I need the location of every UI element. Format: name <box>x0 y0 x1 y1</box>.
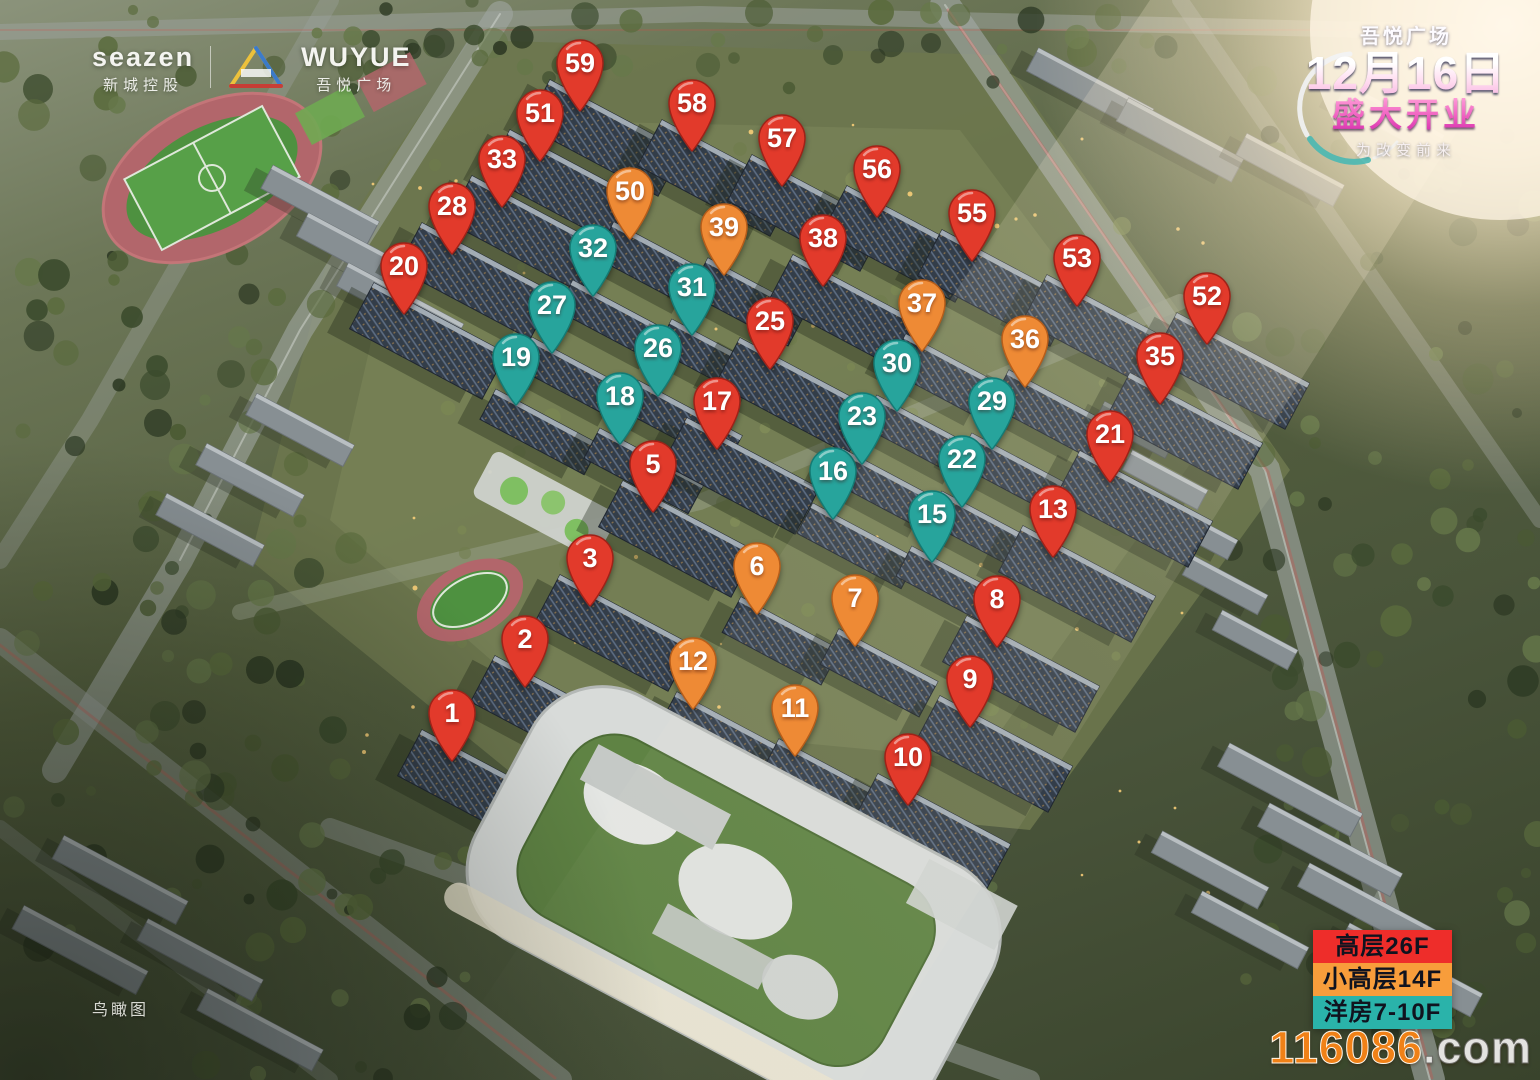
marker-number: 28 <box>424 190 480 222</box>
marker-number: 5 <box>625 448 681 480</box>
building-marker-25: 25 <box>742 294 798 372</box>
marker-number: 9 <box>942 663 998 695</box>
building-marker-36: 36 <box>997 312 1053 390</box>
marker-number: 8 <box>969 583 1025 615</box>
marker-number: 1 <box>424 697 480 729</box>
marker-number: 52 <box>1179 280 1235 312</box>
banner-tagline: 为改变前来 <box>1296 139 1516 160</box>
building-marker-52: 52 <box>1179 269 1235 347</box>
banner-project-name: 吾悦广场 <box>1296 20 1516 49</box>
marker-number: 53 <box>1049 242 1105 274</box>
building-marker-57: 57 <box>754 111 810 189</box>
building-marker-5: 5 <box>625 437 681 515</box>
building-marker-12: 12 <box>665 634 721 712</box>
building-marker-7: 7 <box>827 571 883 649</box>
marker-number: 50 <box>602 175 658 207</box>
building-marker-17: 17 <box>689 374 745 452</box>
marker-number: 11 <box>767 692 823 724</box>
marker-number: 58 <box>664 87 720 119</box>
building-marker-56: 56 <box>849 142 905 220</box>
marker-number: 57 <box>754 122 810 154</box>
marker-number: 36 <box>997 323 1053 355</box>
marker-number: 13 <box>1025 493 1081 525</box>
building-marker-38: 38 <box>795 211 851 289</box>
marker-number: 7 <box>827 582 883 614</box>
watermark-suffix: .com <box>1423 1022 1532 1073</box>
marker-number: 59 <box>552 47 608 79</box>
building-marker-10: 10 <box>880 730 936 808</box>
building-marker-2: 2 <box>497 612 553 690</box>
wuyue-wordmark: WUYUE <box>301 44 412 70</box>
logo-divider <box>210 46 211 88</box>
seazen-cn-label: 新城控股 <box>103 74 183 95</box>
marker-number: 25 <box>742 305 798 337</box>
brand-logos: seazen 新城控股 WUYUE 吾悦广场 <box>92 44 412 95</box>
building-marker-21: 21 <box>1082 407 1138 485</box>
building-type-legend: 高层26F 小高层14F 洋房7-10F <box>1313 930 1452 1029</box>
view-type-label: 鸟瞰图 <box>92 996 149 1020</box>
grand-opening-banner: 吾悦广场 12月16日 盛大开业 为改变前来 <box>1296 20 1516 170</box>
building-marker-3: 3 <box>562 531 618 609</box>
building-marker-59: 59 <box>552 36 608 114</box>
building-marker-50: 50 <box>602 164 658 242</box>
marker-number: 21 <box>1082 418 1138 450</box>
marker-number: 56 <box>849 153 905 185</box>
marker-number: 6 <box>729 550 785 582</box>
building-marker-37: 37 <box>894 276 950 354</box>
marker-number: 38 <box>795 222 851 254</box>
banner-opening-date: 12月16日 <box>1296 49 1516 97</box>
banner-headline: 盛大开业 <box>1296 97 1516 133</box>
building-marker-6: 6 <box>729 539 785 617</box>
seazen-wordmark: seazen <box>92 44 194 70</box>
marker-number: 17 <box>689 385 745 417</box>
wuyue-logo: WUYUE 吾悦广场 <box>301 44 412 95</box>
seazen-triangle-cert-logo <box>227 44 285 92</box>
building-marker-58: 58 <box>664 76 720 154</box>
building-marker-13: 13 <box>1025 482 1081 560</box>
building-marker-9: 9 <box>942 652 998 730</box>
wuyue-cn-label: 吾悦广场 <box>316 74 396 95</box>
building-marker-39: 39 <box>696 200 752 278</box>
marker-number: 39 <box>696 211 752 243</box>
marker-number: 12 <box>665 645 721 677</box>
seazen-logo: seazen 新城控股 <box>92 44 194 95</box>
marker-number: 55 <box>944 197 1000 229</box>
building-marker-1: 1 <box>424 686 480 764</box>
building-marker-8: 8 <box>969 572 1025 650</box>
marker-number: 2 <box>497 623 553 655</box>
marker-number: 3 <box>562 542 618 574</box>
building-marker-28: 28 <box>424 179 480 257</box>
marker-number: 10 <box>880 741 936 773</box>
building-marker-55: 55 <box>944 186 1000 264</box>
legend-item-highrise: 高层26F <box>1313 930 1452 963</box>
building-marker-53: 53 <box>1049 231 1105 309</box>
building-marker-11: 11 <box>767 681 823 759</box>
marker-number: 37 <box>894 287 950 319</box>
watermark: 116086.com <box>1269 1022 1532 1074</box>
legend-item-midrise: 小高层14F <box>1313 963 1452 996</box>
aerial-masterplan-rendering: 1 2 3 5 6 7 8 9 10 11 <box>0 0 1540 1080</box>
watermark-name: 116086 <box>1269 1022 1423 1073</box>
